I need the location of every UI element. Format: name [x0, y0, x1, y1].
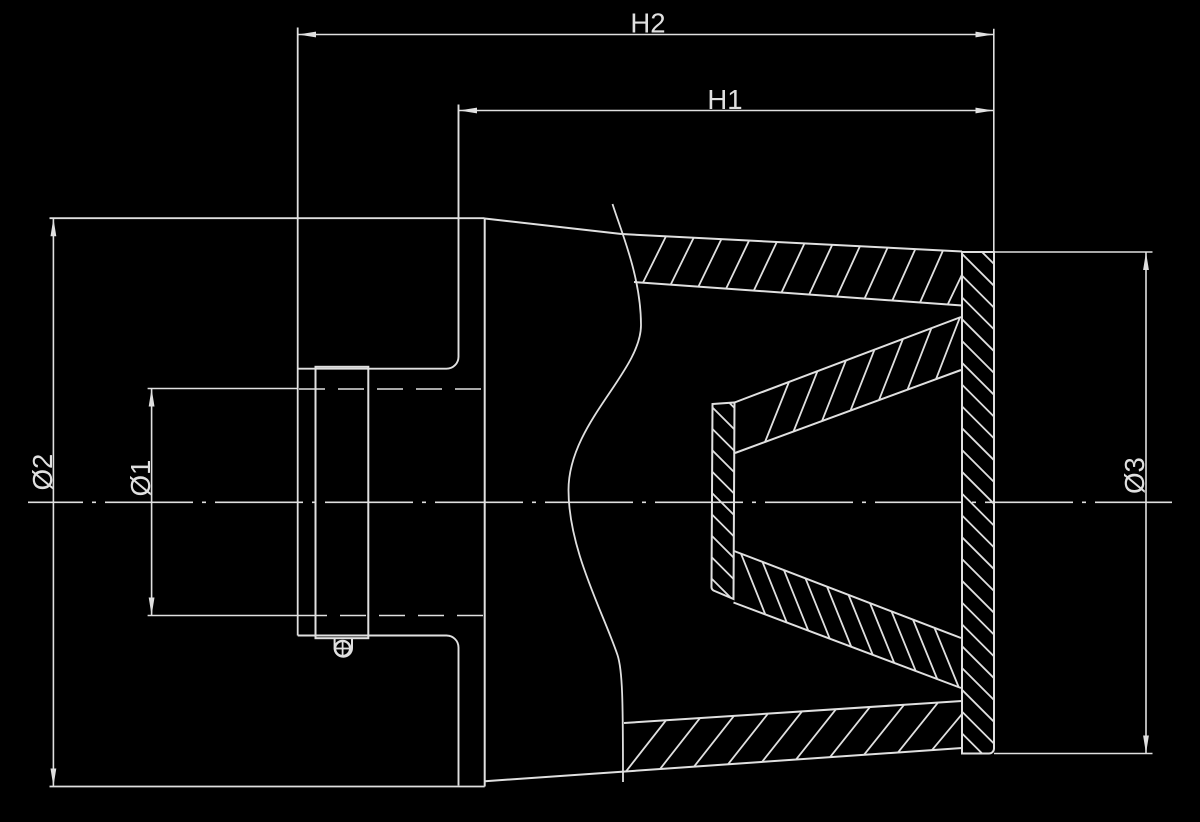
svg-text:Ø1: Ø1: [125, 460, 156, 497]
svg-text:H2: H2: [630, 8, 665, 39]
svg-text:Ø3: Ø3: [1119, 457, 1150, 494]
svg-text:H1: H1: [707, 84, 742, 115]
svg-text:Ø2: Ø2: [27, 454, 58, 491]
